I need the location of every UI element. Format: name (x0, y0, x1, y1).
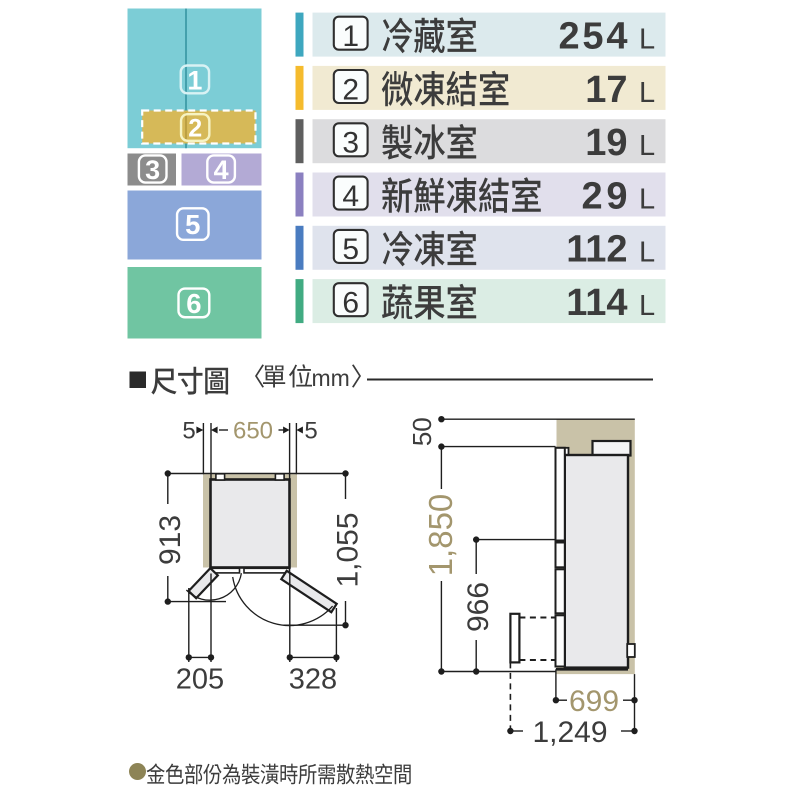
svg-text:L: L (639, 130, 655, 162)
svg-text:114: 114 (566, 282, 627, 324)
svg-text:17: 17 (585, 69, 627, 111)
svg-text:6: 6 (342, 287, 359, 320)
svg-text:5: 5 (304, 418, 317, 445)
svg-text:50: 50 (407, 417, 437, 446)
svg-text:L: L (639, 24, 655, 56)
svg-text:mm: mm (312, 365, 350, 391)
svg-text:L: L (639, 77, 655, 109)
svg-text:328: 328 (289, 664, 337, 696)
svg-text:19: 19 (585, 122, 627, 164)
svg-text:3: 3 (145, 155, 160, 185)
svg-text:4: 4 (342, 180, 359, 213)
svg-text:6: 6 (186, 288, 201, 319)
svg-text:1,249: 1,249 (532, 716, 607, 749)
svg-text:L: L (639, 237, 655, 269)
svg-text:112: 112 (566, 229, 627, 271)
svg-text:L: L (639, 290, 655, 322)
svg-text:2: 2 (188, 115, 202, 143)
svg-text:4: 4 (214, 155, 229, 185)
svg-text:254: 254 (559, 16, 628, 58)
svg-text:650: 650 (233, 418, 273, 445)
svg-text:699: 699 (569, 685, 619, 718)
svg-text:966: 966 (462, 582, 495, 632)
svg-text:1: 1 (342, 20, 359, 53)
svg-text:1,055: 1,055 (332, 512, 365, 587)
svg-text:205: 205 (176, 664, 224, 696)
svg-text:5: 5 (342, 233, 359, 266)
svg-text:2: 2 (342, 73, 359, 106)
svg-text:1: 1 (187, 65, 202, 95)
svg-text:3: 3 (342, 127, 359, 160)
svg-text:L: L (639, 183, 655, 215)
svg-text:5: 5 (182, 418, 195, 445)
svg-text:913: 913 (154, 515, 187, 565)
svg-text:1,850: 1,850 (422, 494, 459, 577)
svg-text:5: 5 (185, 209, 200, 240)
